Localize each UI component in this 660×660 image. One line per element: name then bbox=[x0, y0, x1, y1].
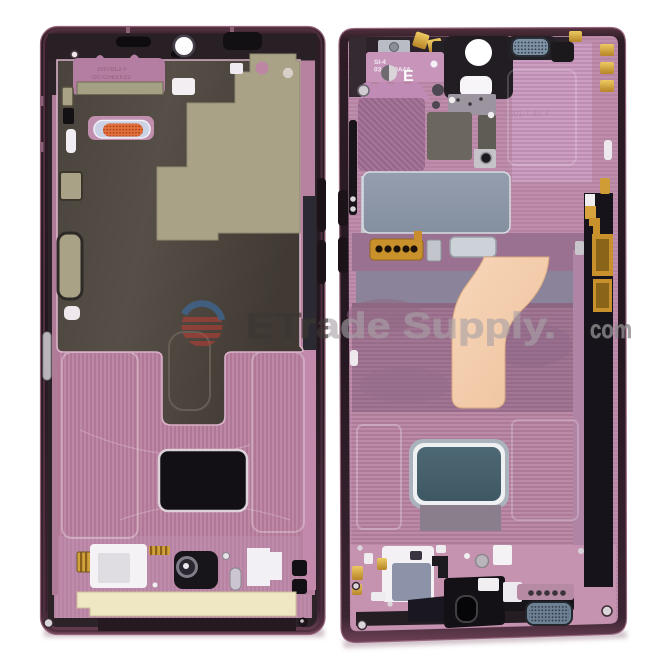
svg-text:com: com bbox=[590, 314, 632, 344]
svg-text:3901-T 4E 4: 3901-T 4E 4 bbox=[505, 108, 550, 119]
svg-text:SI-4: SI-4 bbox=[374, 59, 386, 66]
svg-text:2007BL2-F: 2007BL2-F bbox=[97, 67, 128, 73]
svg-text:OC-CHEEK23: OC-CHEEK23 bbox=[92, 75, 131, 81]
